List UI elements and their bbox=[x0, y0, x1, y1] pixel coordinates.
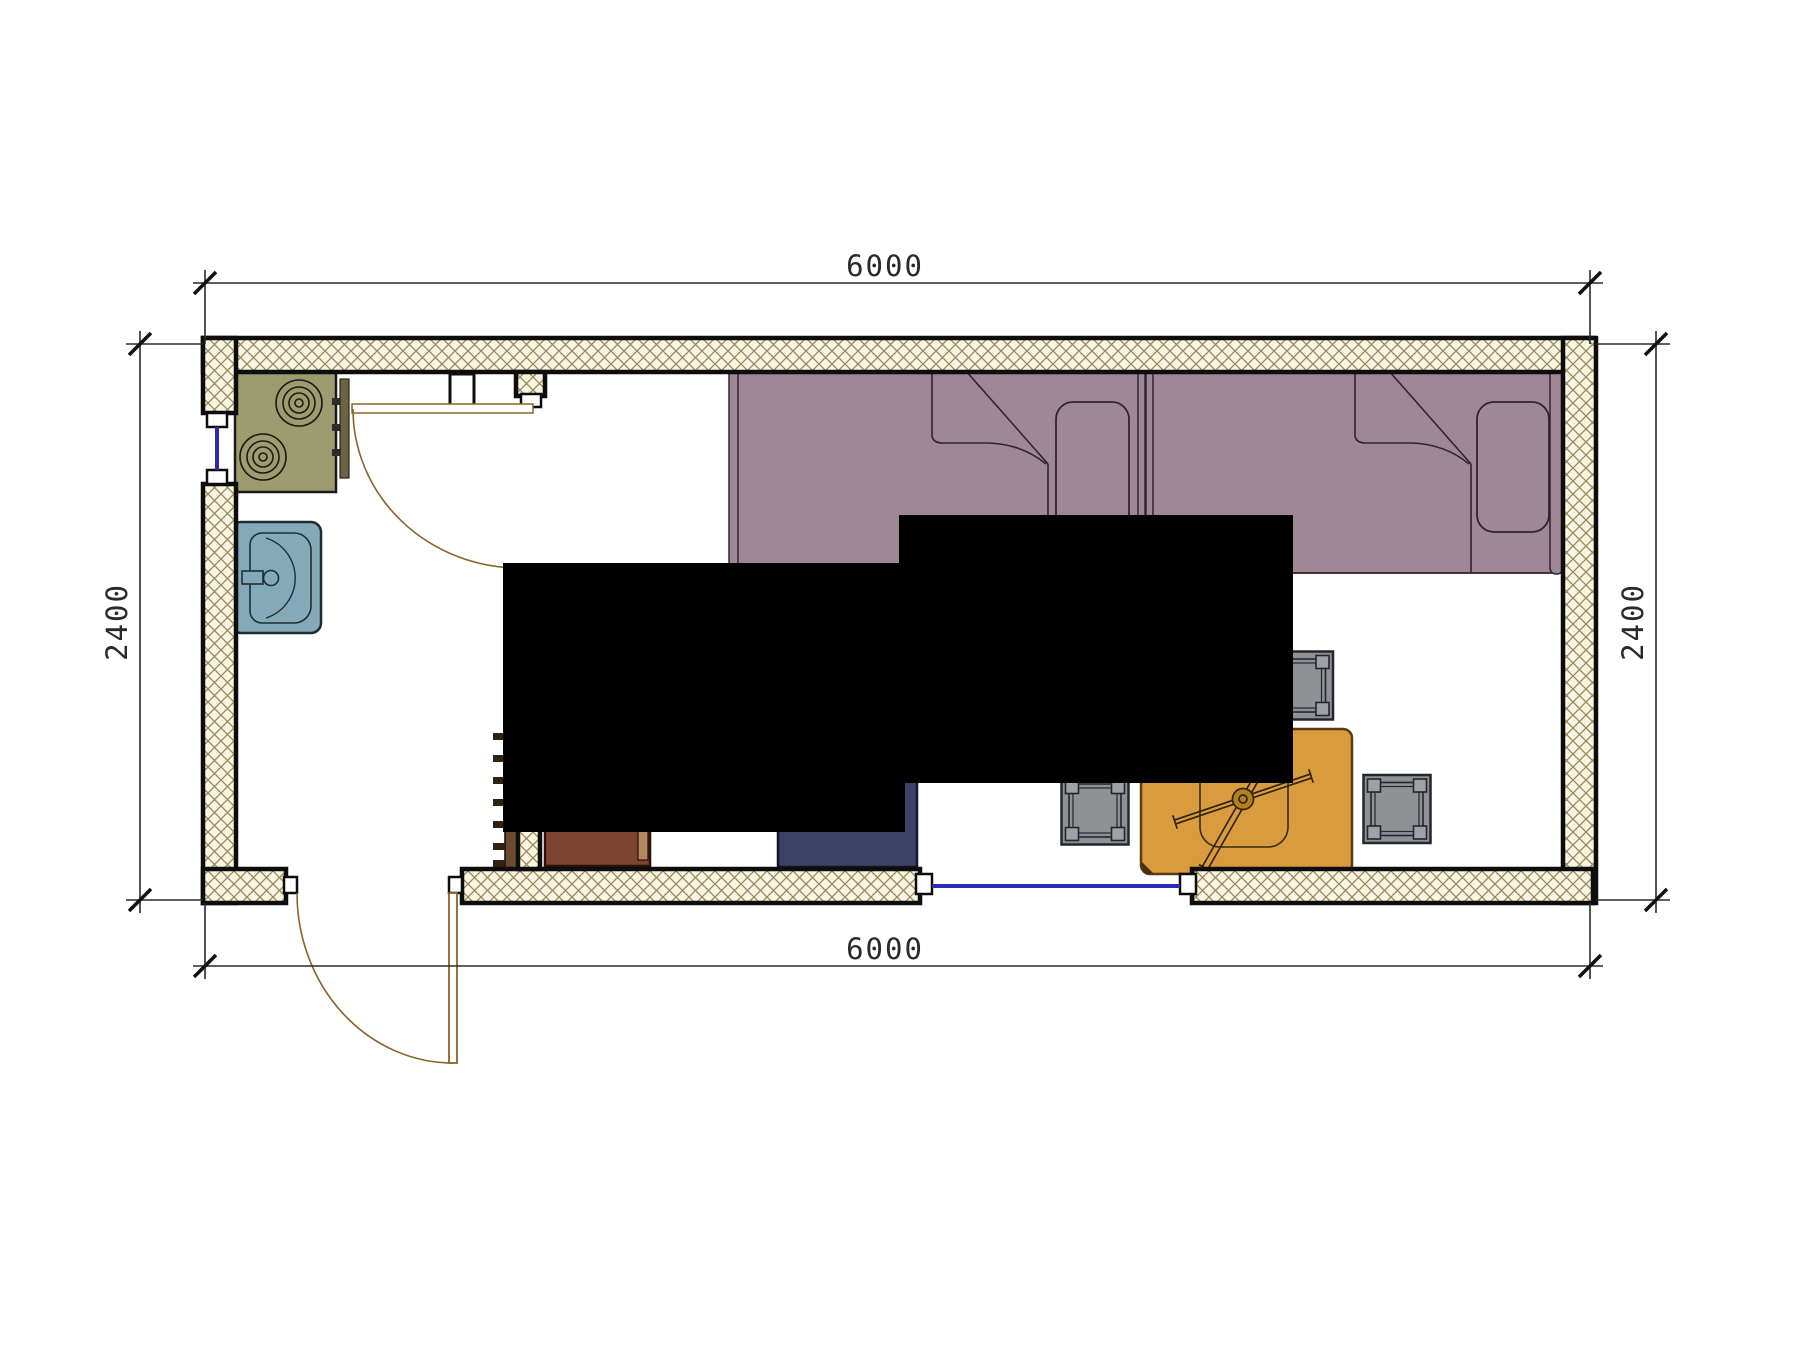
window-left-glass bbox=[215, 427, 219, 470]
entry-door-swing-arc bbox=[297, 893, 453, 1063]
entry-door-frame bbox=[449, 877, 462, 893]
entry-door bbox=[297, 893, 457, 1063]
pillow bbox=[1056, 402, 1129, 532]
sink-faucet-knob bbox=[264, 571, 279, 586]
wall-right bbox=[1563, 338, 1596, 903]
floor-plan-page: 6000 6000 2400 2400 VANDA bbox=[0, 0, 1800, 1350]
wall-left-upper bbox=[203, 338, 236, 413]
window-left-frame bbox=[207, 413, 227, 427]
interior-door-swing-arc bbox=[353, 409, 520, 568]
dim-label-right: 2400 bbox=[1616, 583, 1650, 661]
interior-door bbox=[340, 379, 533, 568]
dim-label-bottom: 6000 bbox=[846, 932, 924, 966]
wall-top-door-jamb-stub bbox=[516, 372, 545, 396]
wall-top bbox=[203, 338, 1593, 372]
window-left-frame bbox=[207, 470, 227, 484]
entry-door-frame bbox=[284, 877, 297, 893]
window-bottom-glass bbox=[932, 884, 1180, 888]
wall-bottom-right bbox=[1192, 869, 1593, 903]
window-bottom-frame bbox=[916, 874, 932, 894]
wall-bottom-left-stub bbox=[203, 869, 286, 903]
stool bbox=[1364, 775, 1431, 843]
dim-label-top: 6000 bbox=[846, 249, 924, 283]
wall-left-lower bbox=[203, 484, 236, 903]
dimension-left bbox=[126, 331, 203, 913]
bed-left-footboard bbox=[729, 369, 738, 578]
watermark-text: VANDA bbox=[548, 566, 1176, 806]
sink bbox=[231, 522, 321, 633]
dim-label-left: 2400 bbox=[100, 583, 134, 661]
pillow bbox=[1477, 402, 1549, 532]
sink-faucet bbox=[242, 571, 263, 584]
wall-bottom-center bbox=[462, 869, 920, 903]
window-bottom-frame bbox=[1180, 874, 1196, 894]
interior-door-track bbox=[352, 404, 533, 413]
interior-door-leaf bbox=[340, 379, 349, 478]
entry-door-leaf bbox=[449, 893, 457, 1063]
floor-plan-canvas: 6000 6000 2400 2400 VANDA bbox=[0, 0, 1800, 1350]
stove bbox=[235, 369, 344, 492]
